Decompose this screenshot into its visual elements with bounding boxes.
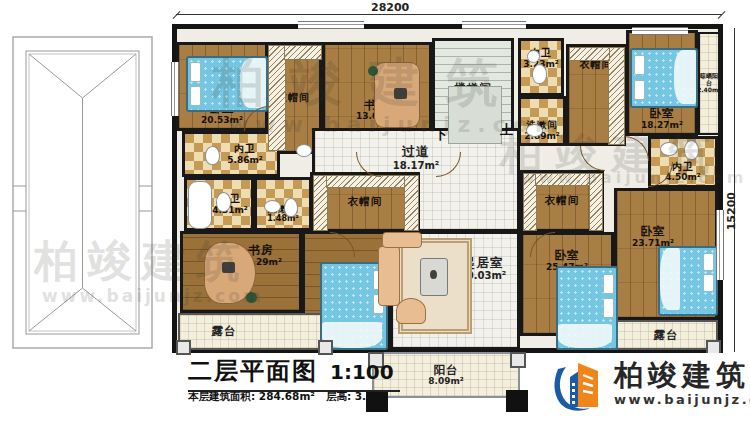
floor-height-value: 3.6m — [355, 390, 385, 402]
sofa — [382, 232, 422, 248]
title-block: 二层平面图1:100 — [188, 355, 400, 392]
plan-stats: 本层建筑面积: 284.68m² 层高: 3.6m — [188, 390, 384, 404]
sink — [660, 142, 678, 156]
room-label-group: 衣帽间 — [545, 195, 580, 207]
toilet — [532, 64, 547, 84]
wardrobe-shelf — [268, 45, 286, 151]
room-terrace-bottom-right: 露台 — [614, 320, 718, 350]
room-name: 晾晒阳台 — [697, 73, 721, 86]
pillow — [190, 62, 201, 82]
room-label-group: 卧室 18.27m² — [641, 107, 683, 130]
wardrobe-shelf — [326, 175, 408, 188]
toilet — [216, 192, 231, 212]
window — [716, 210, 724, 280]
room-label-group: 晾晒阳台 2.40m² — [697, 73, 721, 93]
floor-area-label: 本层建筑面积: — [188, 390, 255, 402]
room-name: 过道 — [393, 145, 439, 160]
room-area: 18.27m² — [641, 120, 683, 130]
sink — [526, 124, 543, 137]
floor-area-value: 284.68m² — [259, 390, 315, 402]
wardrobe-shelf — [608, 47, 625, 145]
room-name: 露台 — [654, 329, 679, 342]
room-label-group: 衣帽间 — [348, 196, 383, 208]
window — [171, 62, 179, 116]
room-name: 内卫 — [227, 143, 263, 154]
armchair — [396, 298, 426, 324]
bed-sheet — [558, 324, 612, 348]
column — [318, 340, 333, 355]
window — [298, 21, 364, 29]
room-wash-top-center: 洗漱间 2.89m² — [518, 96, 566, 146]
wardrobe-shelf — [404, 175, 419, 231]
wardrobe-shelf — [589, 173, 603, 231]
window — [462, 21, 526, 29]
bed-sheet — [660, 248, 680, 310]
room-name: 衣帽间 — [348, 196, 383, 208]
toilet — [205, 146, 220, 165]
room-name: 卧室 — [632, 225, 674, 238]
room-terrace-bottom-left: 露台 — [178, 313, 330, 350]
wardrobe-shelf — [535, 173, 592, 186]
pillow — [603, 298, 614, 318]
room-label-group: 卧室 23.71m² — [632, 225, 674, 248]
room-label-group: 露台 — [654, 329, 679, 342]
plant-icon — [246, 292, 257, 303]
room-label-group: 过道 18.17m² — [393, 145, 439, 171]
room-label-group: 内卫 5.86m² — [227, 143, 263, 164]
dimension-right-value: 15200 — [725, 192, 738, 230]
toilet — [684, 140, 699, 160]
dimension-line-right — [734, 28, 735, 352]
bed — [658, 246, 718, 316]
room-area: 20.53m² — [201, 115, 243, 125]
sink — [264, 200, 281, 213]
bed — [186, 56, 268, 112]
room-area: 5.86m² — [227, 155, 263, 165]
pillow — [190, 86, 201, 106]
sofa — [378, 246, 400, 306]
bathtub — [188, 181, 212, 229]
bed-sheet — [674, 50, 696, 104]
brand-text-group: 柏竣建筑 www.baijunjz.com — [614, 361, 750, 407]
room-label-group: 阳台 8.09m² — [428, 364, 464, 387]
sink — [296, 144, 312, 157]
room-area: 18.17m² — [393, 160, 439, 171]
toilet — [284, 198, 298, 217]
dimension-top-value: 28200 — [368, 1, 412, 14]
window — [632, 27, 688, 35]
room-name: 衣帽间 — [545, 195, 580, 207]
brand-name: 柏竣建筑 — [614, 361, 750, 390]
plan-title: 二层平面图 — [188, 357, 318, 385]
column — [176, 340, 191, 355]
sink — [527, 50, 540, 63]
computer-icon — [394, 88, 407, 99]
brand-logo-icon — [552, 355, 606, 413]
adjacent-roof-plan — [12, 36, 154, 350]
bed-sheet — [240, 58, 266, 108]
computer-icon — [222, 262, 235, 273]
room-label-group: 露台 — [212, 325, 237, 338]
room-bath-mid-left-1: 内卫 5.86m² — [182, 131, 280, 177]
stair-landing — [448, 86, 502, 144]
plant-icon — [368, 66, 378, 76]
stair-down-label: 下 — [434, 126, 447, 144]
wardrobe-shelf — [284, 45, 322, 60]
room-name: 阳台 — [428, 364, 464, 377]
pillow — [703, 274, 714, 292]
wardrobe-shelf — [569, 47, 610, 61]
pillow — [603, 274, 614, 294]
dimension-line-top — [176, 14, 722, 15]
column — [506, 390, 528, 412]
pillow — [634, 80, 645, 100]
pillow — [634, 55, 645, 75]
brand-logo: 柏竣建筑 www.baijunjz.com — [548, 353, 750, 415]
brand-website: www.baijunjz.com — [614, 392, 750, 407]
floor-plan-page: { "page": { "dim_top": "28200", "dim_rig… — [0, 0, 750, 423]
room-sun-balcony: 晾晒阳台 2.40m² — [698, 32, 720, 135]
room-name: 卧室 — [641, 107, 683, 120]
room-area: 4.50m² — [665, 172, 701, 182]
floor-height-label: 层高: — [326, 390, 351, 402]
room-area: 2.40m² — [697, 87, 721, 94]
room-wash-mid-left: 洗漱间 1.48m² — [254, 177, 312, 231]
bed — [556, 266, 618, 350]
room-name: 露台 — [212, 325, 237, 338]
stair-up-label: 上 — [500, 121, 513, 139]
vase-icon — [430, 270, 437, 279]
plan-scale: 1:100 — [330, 360, 394, 384]
column — [510, 352, 526, 368]
pillow — [703, 253, 714, 271]
bed — [630, 48, 698, 108]
room-area: 8.09m² — [428, 376, 464, 386]
